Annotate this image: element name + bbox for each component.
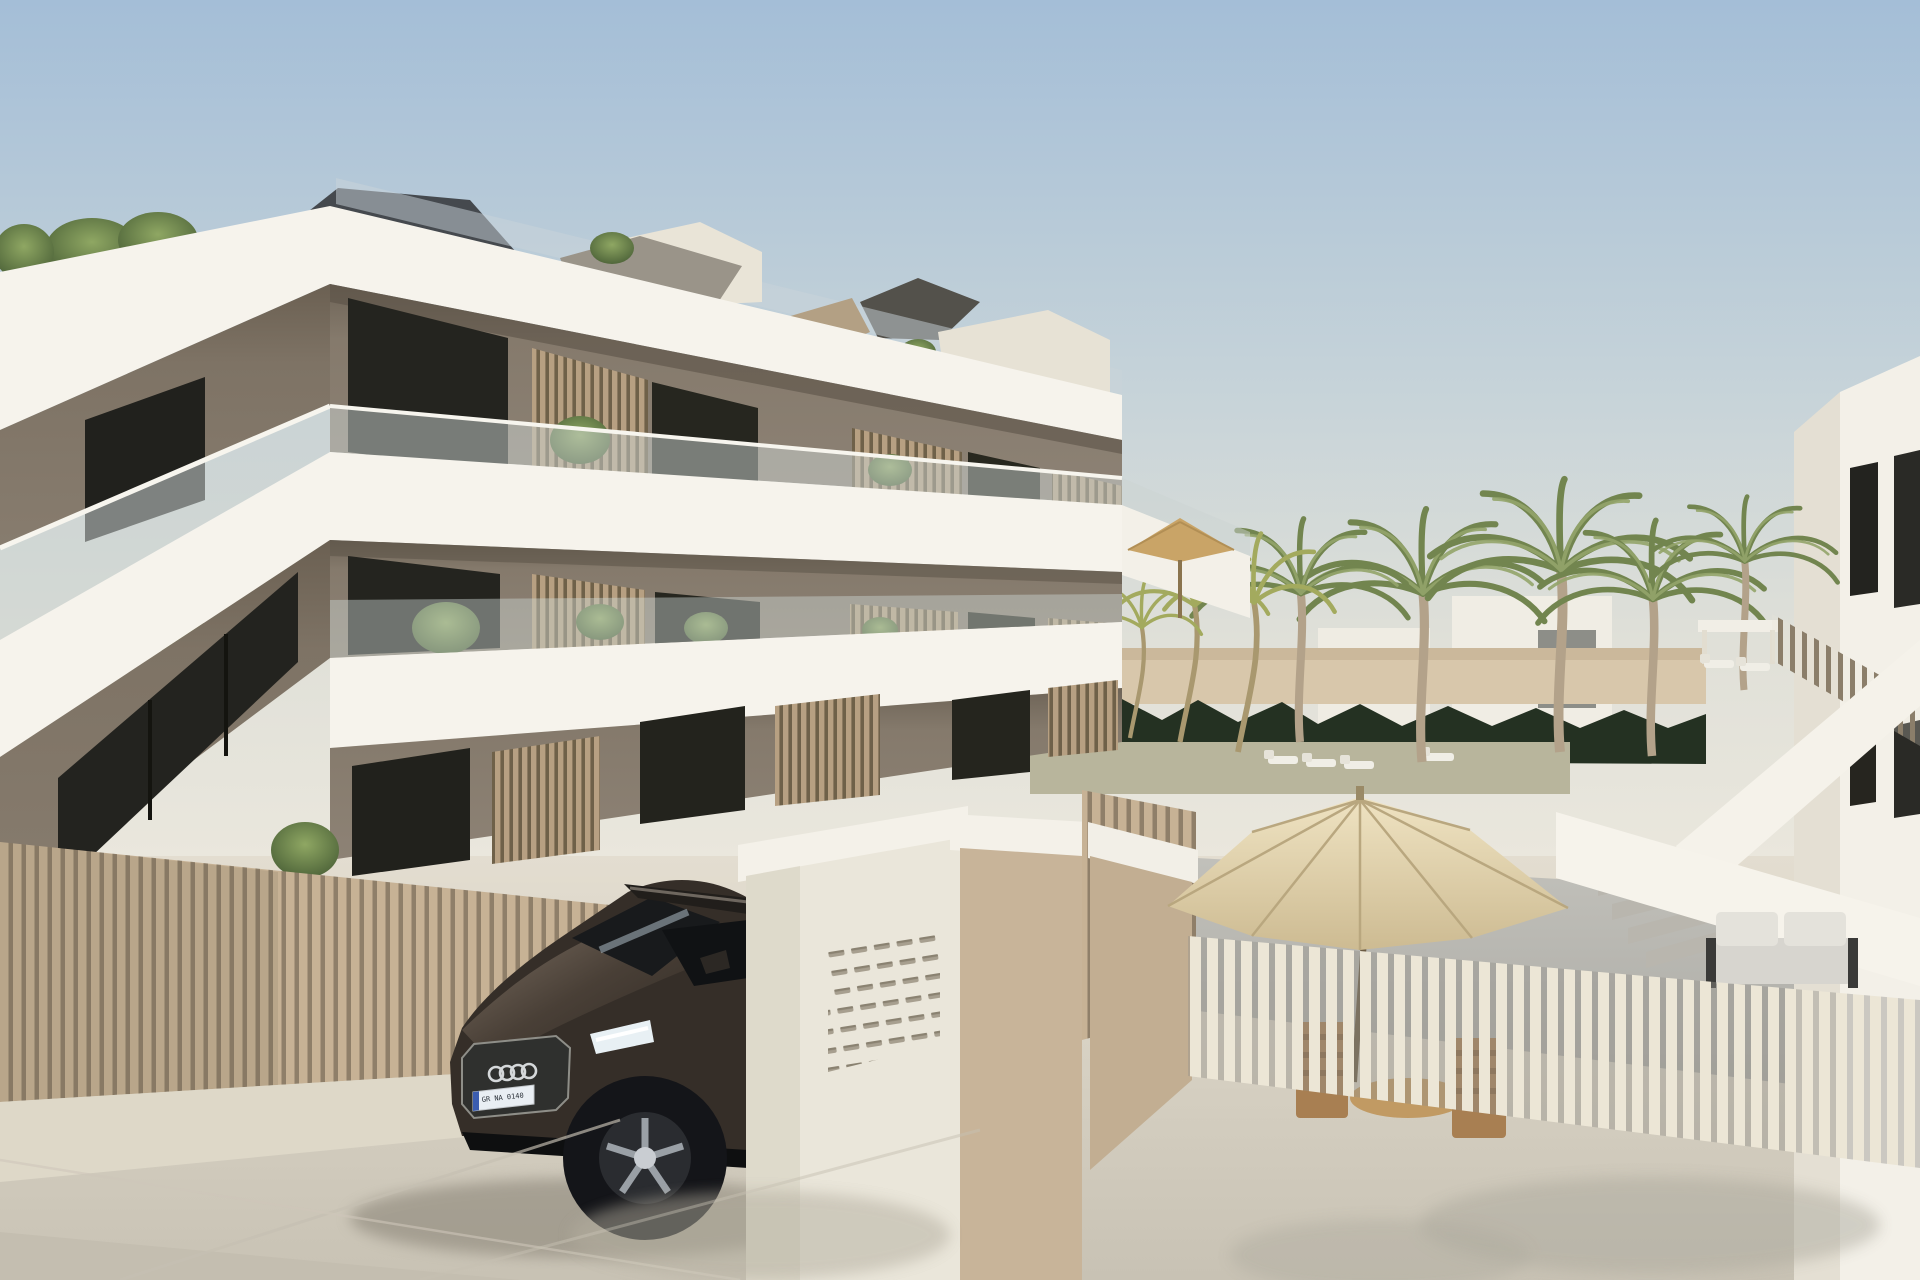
cabana-roof bbox=[1698, 620, 1778, 632]
fence-return-shade bbox=[0, 842, 278, 1102]
scene: GR NA 0140 bbox=[0, 0, 1920, 1280]
window-ground bbox=[640, 706, 745, 824]
slat-screen-ground bbox=[492, 736, 600, 864]
gate-pillar bbox=[960, 848, 1082, 1280]
render-canvas: GR NA 0140 bbox=[0, 0, 1920, 1280]
slat-screen-ground bbox=[775, 694, 880, 806]
window-ground bbox=[352, 748, 470, 876]
window-ground bbox=[952, 690, 1030, 780]
right-window bbox=[1850, 462, 1878, 596]
right-window bbox=[1894, 450, 1920, 608]
slat-screen-ground bbox=[1048, 680, 1118, 757]
umbrella-finial bbox=[1356, 786, 1364, 800]
